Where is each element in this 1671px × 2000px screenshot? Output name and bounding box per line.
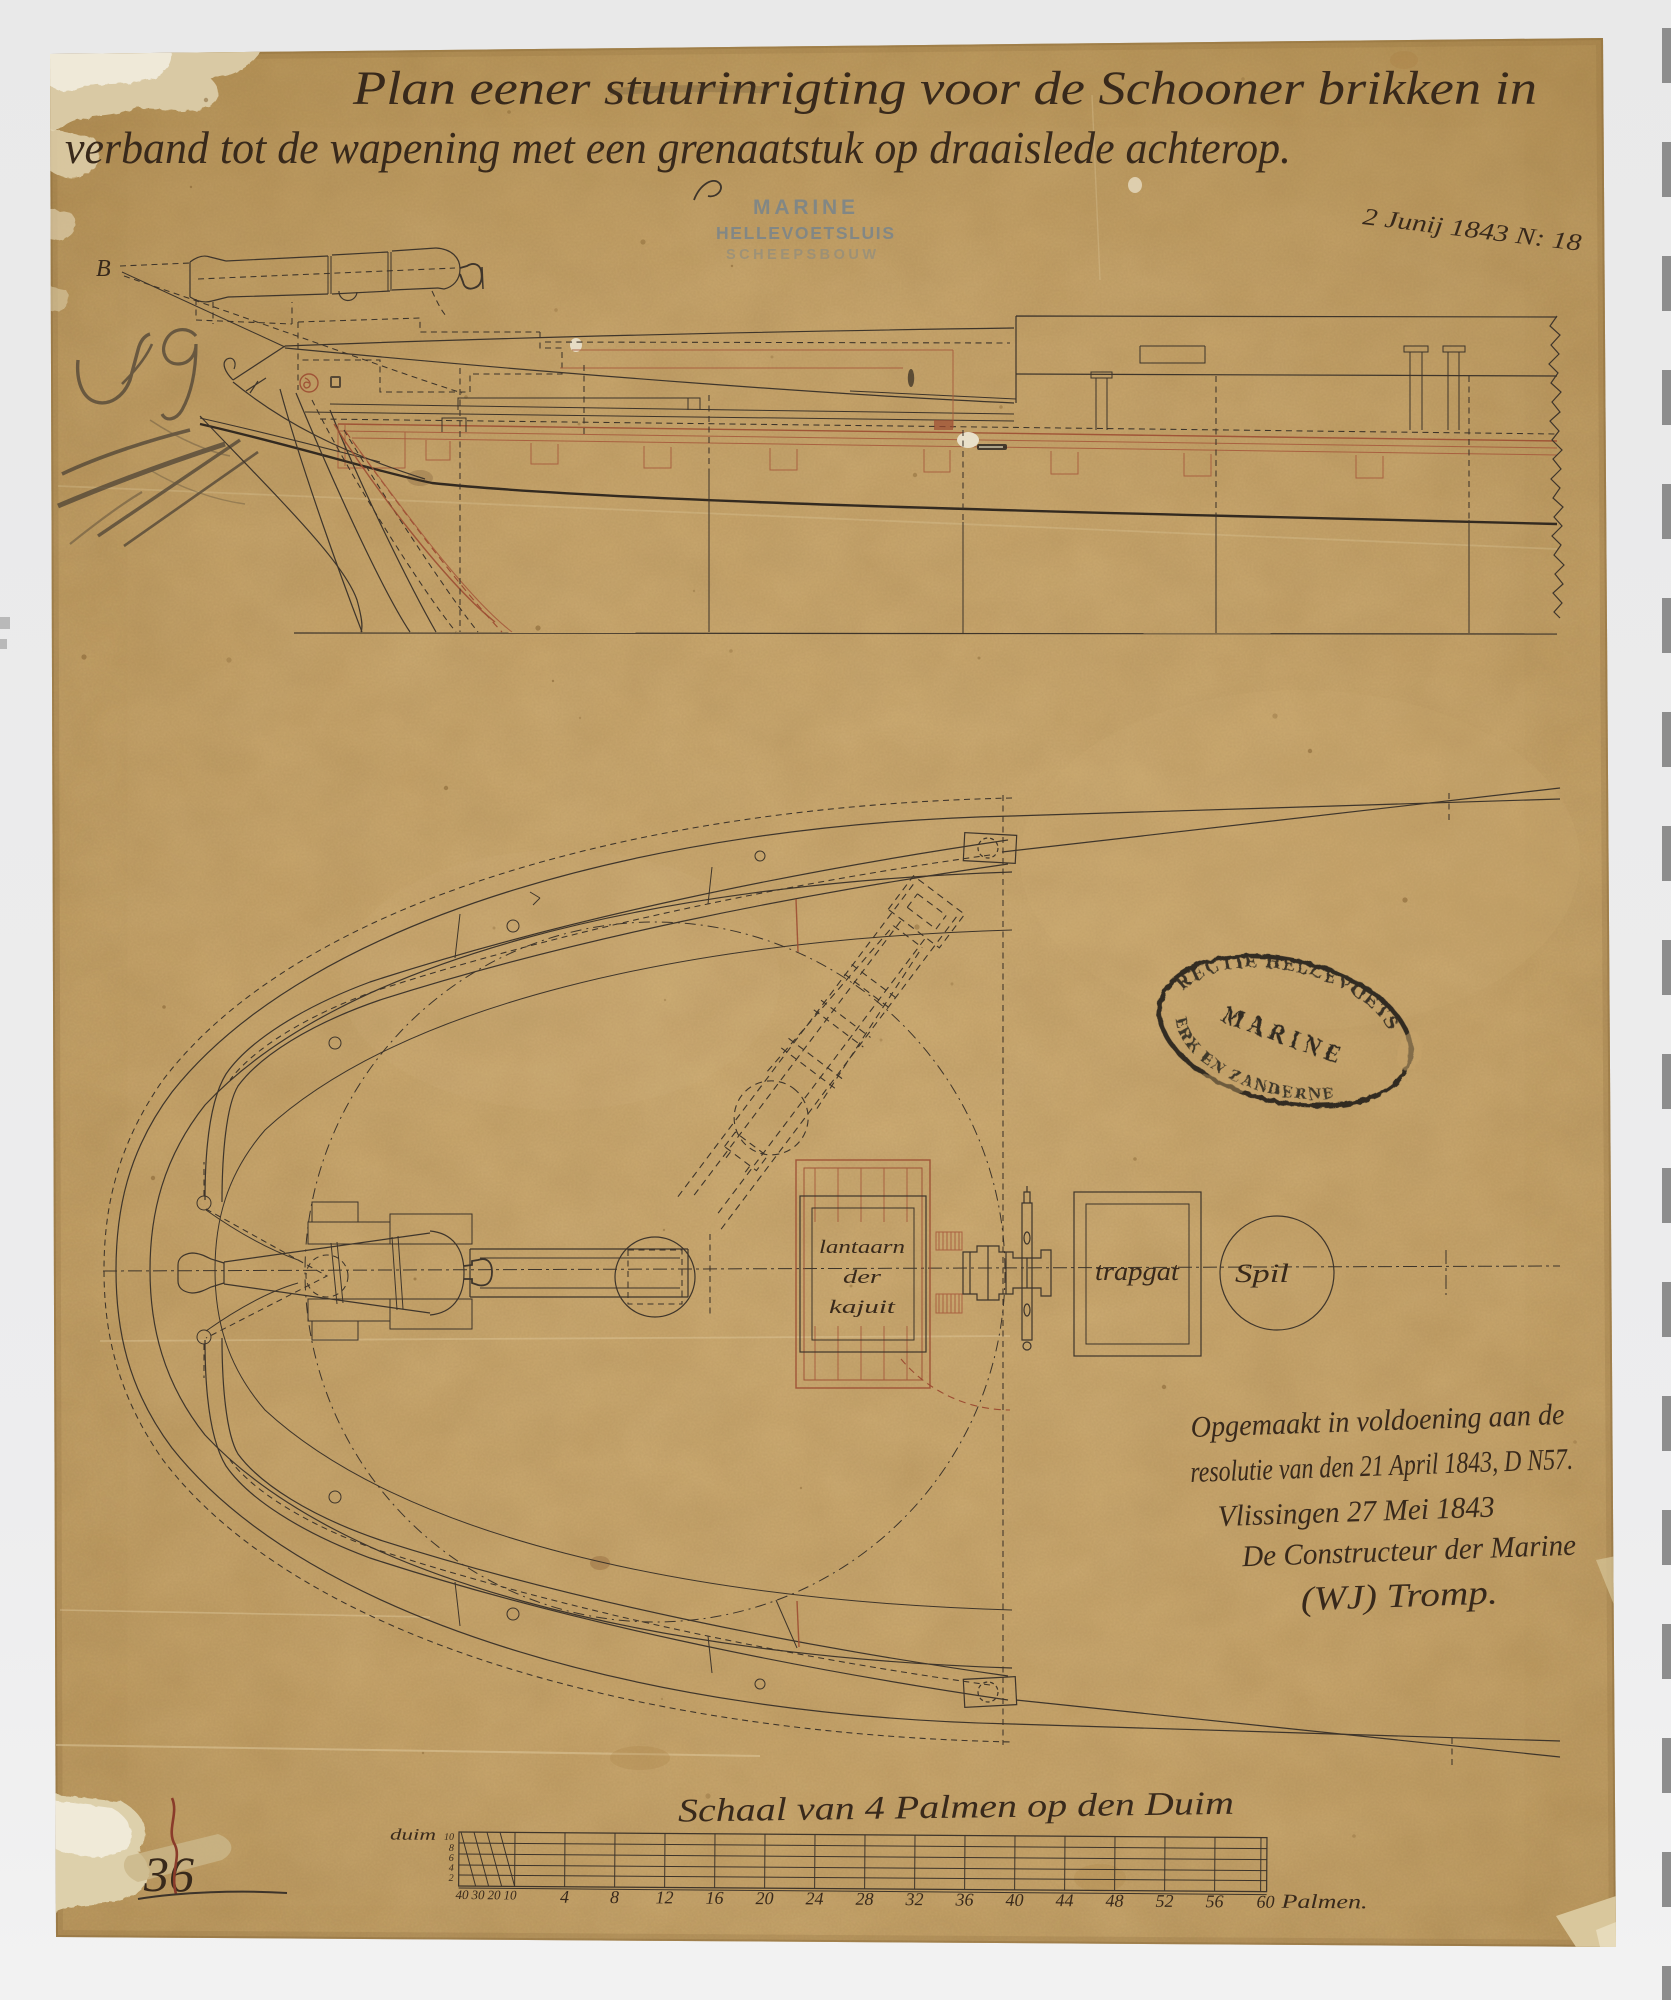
svg-text:30: 30 — [471, 1887, 486, 1902]
svg-text:verband tot de wapening met ee: verband tot de wapening met een grenaats… — [65, 123, 1291, 173]
svg-text:12: 12 — [655, 1887, 673, 1907]
svg-text:SCHEEPSBOUW: SCHEEPSBOUW — [726, 247, 876, 263]
svg-text:40: 40 — [456, 1887, 470, 1902]
svg-text:8: 8 — [610, 1887, 619, 1907]
svg-text:trapgat: trapgat — [1095, 1257, 1180, 1286]
svg-text:44: 44 — [1055, 1890, 1073, 1910]
svg-text:10: 10 — [444, 1832, 454, 1843]
svg-text:56: 56 — [1205, 1891, 1223, 1911]
svg-text:20: 20 — [488, 1887, 502, 1902]
svg-text:HELLEVOETSLUIS: HELLEVOETSLUIS — [716, 223, 894, 243]
svg-text:10: 10 — [504, 1887, 518, 1902]
svg-text:60: 60 — [1256, 1892, 1274, 1912]
svg-text:40: 40 — [1005, 1890, 1023, 1910]
svg-text:Spil: Spil — [1235, 1259, 1289, 1288]
svg-text:28: 28 — [855, 1889, 873, 1909]
svg-text:Palmen.: Palmen. — [1280, 1891, 1367, 1914]
svg-text:52: 52 — [1155, 1891, 1173, 1911]
svg-text:32: 32 — [904, 1889, 923, 1909]
svg-text:(WJ) Tromp.: (WJ) Tromp. — [1300, 1574, 1498, 1618]
svg-text:16: 16 — [705, 1888, 723, 1908]
svg-text:B: B — [96, 256, 111, 282]
svg-text:4: 4 — [560, 1887, 569, 1907]
svg-text:48: 48 — [1105, 1891, 1123, 1911]
svg-text:Plan eener stuurinrigting voor: Plan eener stuurinrigting voor de Schoon… — [352, 62, 1537, 115]
svg-text:kajuit: kajuit — [829, 1297, 896, 1318]
svg-text:duim: duim — [390, 1827, 436, 1844]
svg-text:der: der — [843, 1267, 882, 1288]
svg-text:24: 24 — [805, 1888, 823, 1908]
svg-text:36: 36 — [954, 1889, 973, 1909]
svg-text:2: 2 — [449, 1873, 454, 1884]
svg-text:20: 20 — [755, 1888, 773, 1908]
svg-text:lantaarn: lantaarn — [819, 1237, 905, 1258]
